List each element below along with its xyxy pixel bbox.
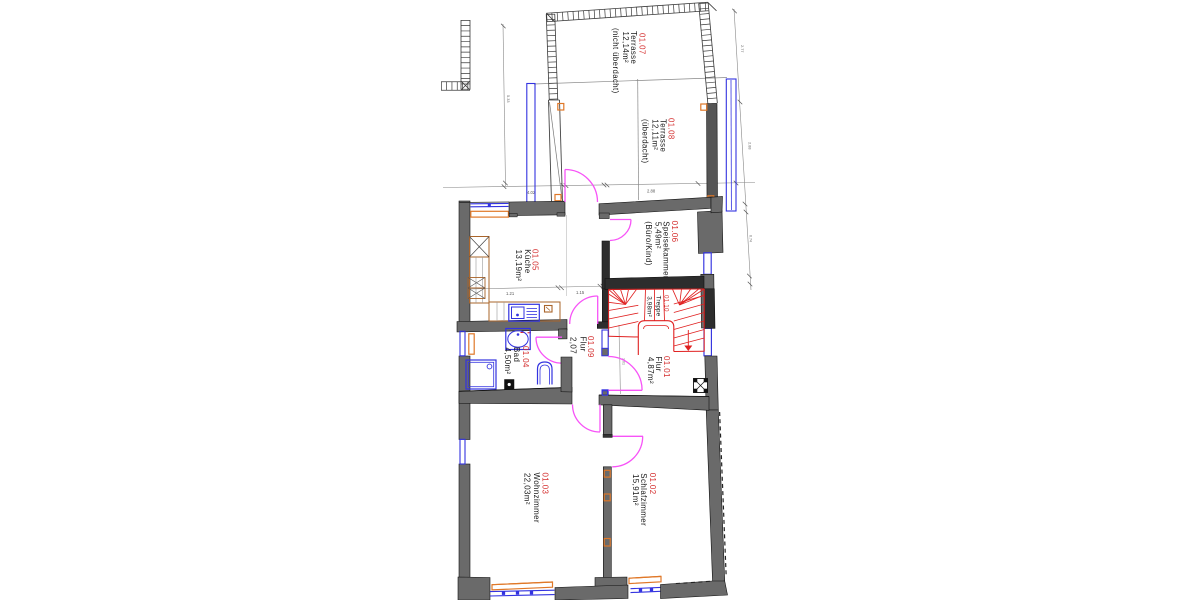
svg-text:5,49m²: 5,49m² [653,222,662,249]
svg-text:22,03m²: 22,03m² [523,473,532,505]
svg-text:Bad: Bad [512,347,521,362]
svg-text:Treppe: Treppe [654,296,661,317]
svg-text:1.21: 1.21 [506,291,515,296]
svg-text:Wohnzimmer: Wohnzimmer [532,473,541,524]
svg-text:2.77: 2.77 [740,45,744,53]
svg-text:4,87m²: 4,87m² [646,357,655,384]
svg-text:01.10: 01.10 [663,295,670,312]
svg-text:(überdacht): (überdacht) [640,119,649,164]
svg-text:1.15: 1.15 [576,290,585,295]
svg-text:4,50m²: 4,50m² [503,348,512,375]
svg-text:(Büro/Kind): (Büro/Kind) [644,221,653,266]
svg-text:2.88: 2.88 [647,189,656,194]
svg-text:15,91m²: 15,91m² [631,474,640,506]
svg-text:12,11m²: 12,11m² [650,119,659,150]
svg-text:13,19m²: 13,19m² [514,250,523,282]
svg-text:(nicht überdacht): (nicht überdacht) [611,28,620,94]
svg-text:0.74: 0.74 [749,235,753,242]
svg-text:01.04: 01.04 [521,346,530,368]
svg-text:12,14m²: 12,14m² [621,32,630,64]
svg-text:5.33: 5.33 [506,95,510,103]
svg-text:01.02: 01.02 [648,473,657,495]
svg-text:2.88: 2.88 [748,142,752,150]
svg-text:Flur: Flur [579,337,588,352]
svg-text:2,07: 2,07 [569,337,578,354]
svg-text:01.06: 01.06 [670,221,679,243]
svg-text:Küche: Küche [523,249,532,274]
svg-text:3,98m²: 3,98m² [645,296,652,317]
